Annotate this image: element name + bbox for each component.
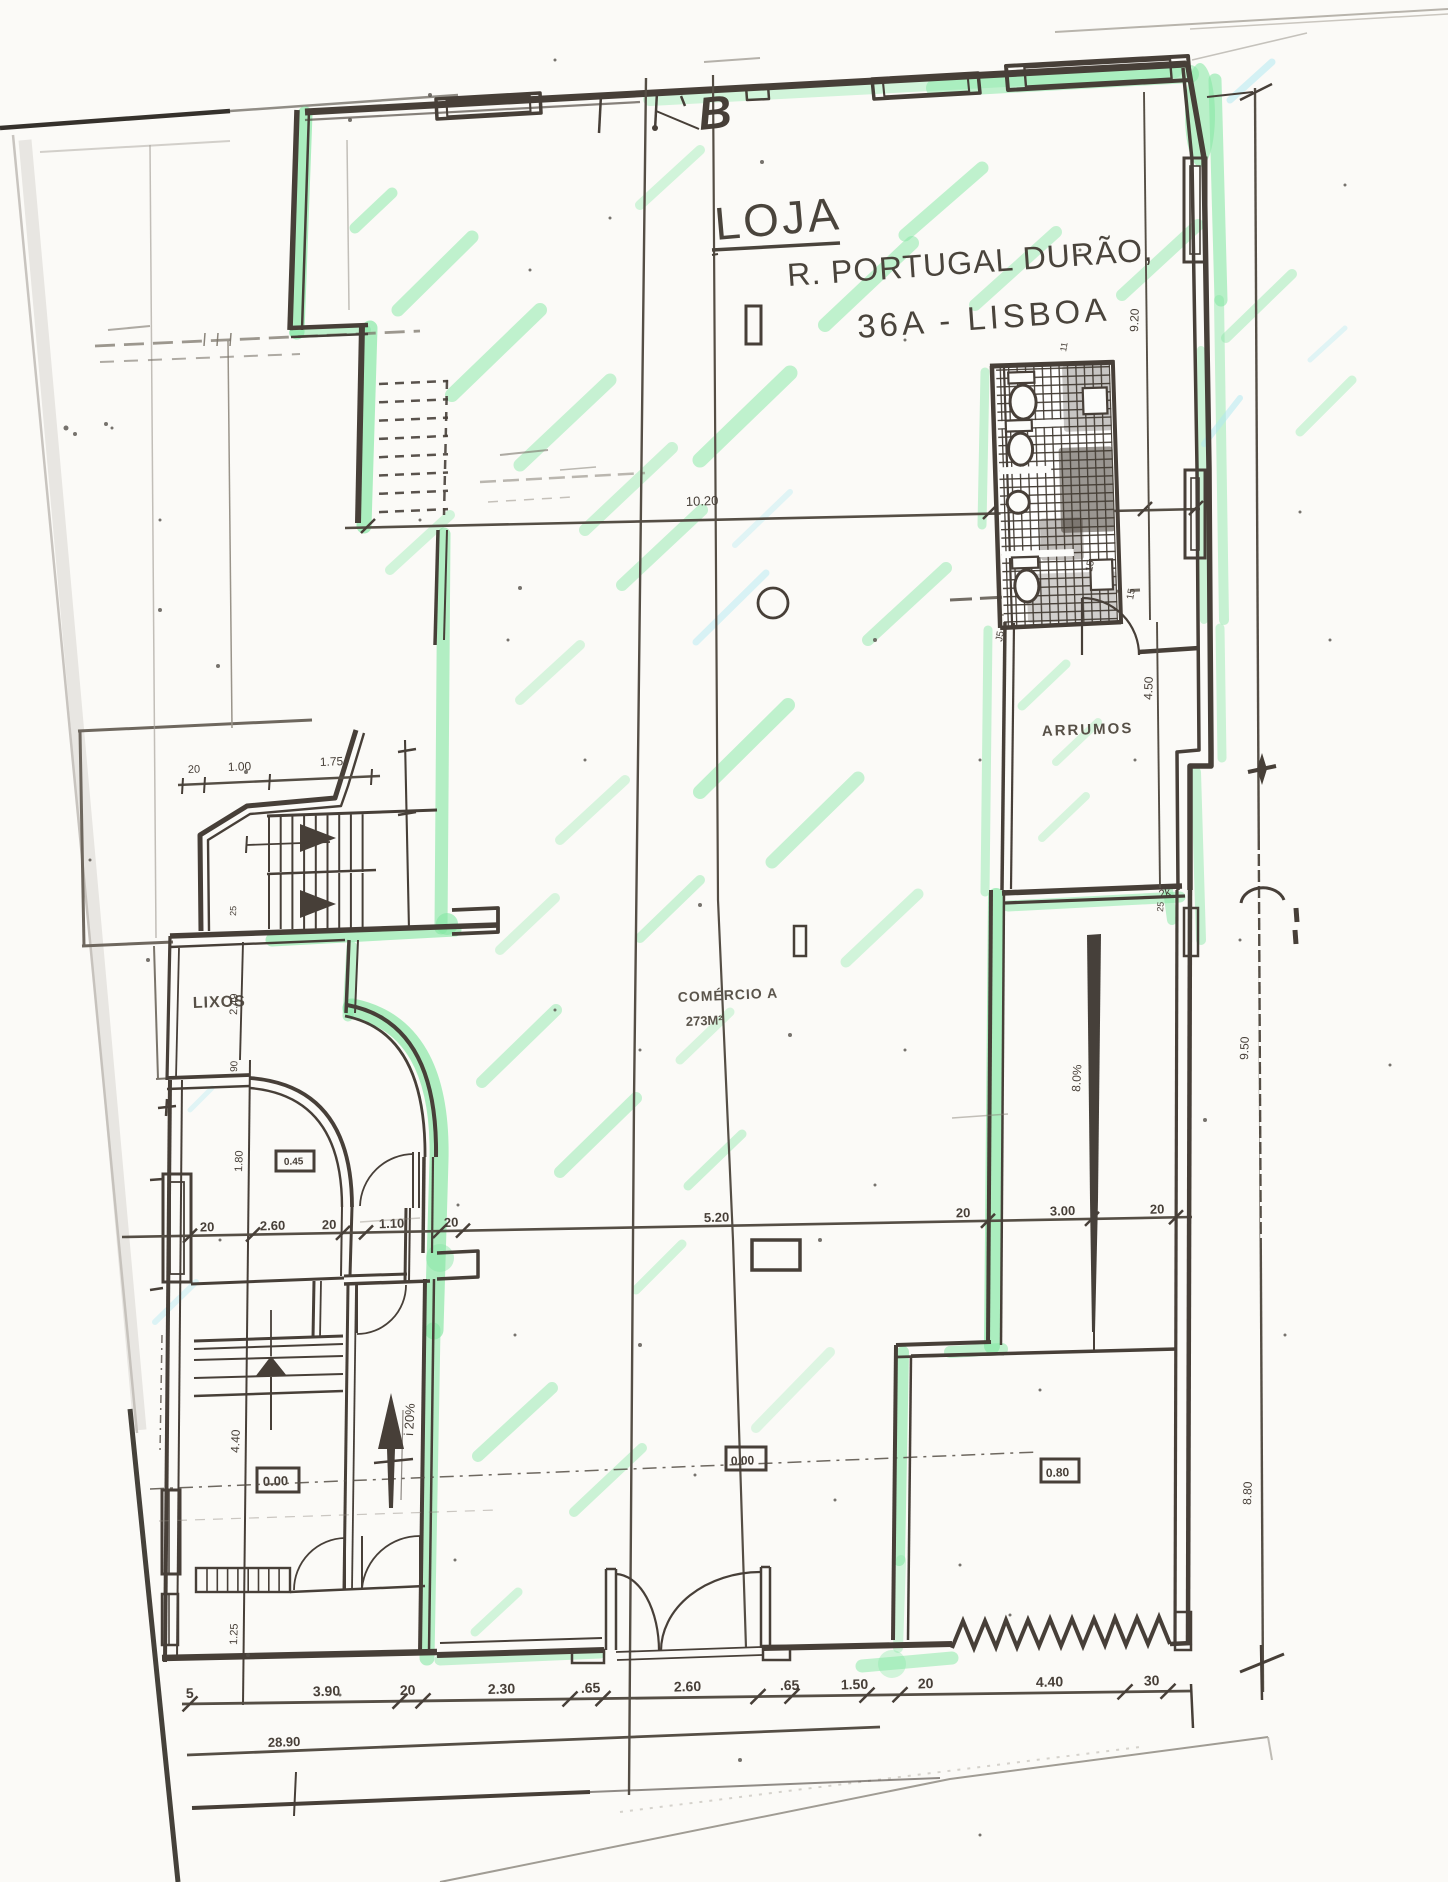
svg-text:5: 5 xyxy=(186,1685,194,1701)
svg-text:9.20: 9.20 xyxy=(1127,308,1142,332)
svg-text:1.50: 1.50 xyxy=(841,1676,869,1693)
svg-text:1.25: 1.25 xyxy=(228,1623,241,1645)
svg-text:3.00: 3.00 xyxy=(1050,1203,1076,1219)
svg-text:4.40: 4.40 xyxy=(228,1429,243,1453)
svg-text:1.80: 1.80 xyxy=(233,1150,246,1172)
svg-text:30: 30 xyxy=(1144,1672,1160,1688)
svg-text:11: 11 xyxy=(1058,341,1069,352)
svg-text:2.49: 2.49 xyxy=(228,993,241,1015)
svg-text:.65: .65 xyxy=(581,1679,601,1696)
svg-text:20: 20 xyxy=(322,1217,337,1232)
svg-text:20: 20 xyxy=(444,1215,459,1230)
svg-text:20: 20 xyxy=(956,1205,971,1220)
svg-text:8.0%: 8.0% xyxy=(1069,1064,1084,1092)
svg-text:5.20: 5.20 xyxy=(704,1209,730,1225)
svg-text:4.40: 4.40 xyxy=(1036,1673,1064,1690)
svg-text:.65: .65 xyxy=(780,1677,800,1694)
svg-text:B: B xyxy=(696,85,734,140)
svg-text:0.45: 0.45 xyxy=(284,1156,304,1168)
svg-text:20: 20 xyxy=(1150,1201,1165,1216)
svg-text:8.80: 8.80 xyxy=(1240,1481,1255,1505)
svg-text:0.00: 0.00 xyxy=(263,1473,289,1489)
svg-text:LOJA: LOJA xyxy=(712,187,843,250)
svg-text:4.50: 4.50 xyxy=(1141,676,1156,700)
svg-text:10.20: 10.20 xyxy=(686,493,719,509)
svg-text:20: 20 xyxy=(188,764,201,776)
svg-text:1.75: 1.75 xyxy=(320,754,344,769)
svg-text:20: 20 xyxy=(200,1219,215,1234)
svg-text:2.30: 2.30 xyxy=(488,1680,516,1697)
svg-text:25: 25 xyxy=(1155,901,1166,912)
svg-text:3.90: 3.90 xyxy=(313,1683,341,1700)
svg-text:2.60: 2.60 xyxy=(260,1218,286,1234)
svg-text:9.50: 9.50 xyxy=(1237,1036,1252,1060)
svg-text:25: 25 xyxy=(228,906,238,916)
svg-text:20: 20 xyxy=(918,1675,934,1691)
svg-text:20: 20 xyxy=(400,1682,416,1698)
svg-text:1.00: 1.00 xyxy=(228,759,252,774)
svg-text:0.80: 0.80 xyxy=(1046,1465,1070,1480)
svg-text:1.10: 1.10 xyxy=(379,1216,405,1232)
svg-text:273M²: 273M² xyxy=(685,1012,723,1029)
svg-text:i 20%: i 20% xyxy=(401,1402,418,1436)
svg-text:90: 90 xyxy=(229,1060,240,1072)
svg-text:2.60: 2.60 xyxy=(674,1678,702,1695)
svg-text:ARRUMOS: ARRUMOS xyxy=(1042,720,1134,740)
svg-text:28.90: 28.90 xyxy=(268,1734,301,1750)
svg-text:0.00: 0.00 xyxy=(731,1453,755,1468)
